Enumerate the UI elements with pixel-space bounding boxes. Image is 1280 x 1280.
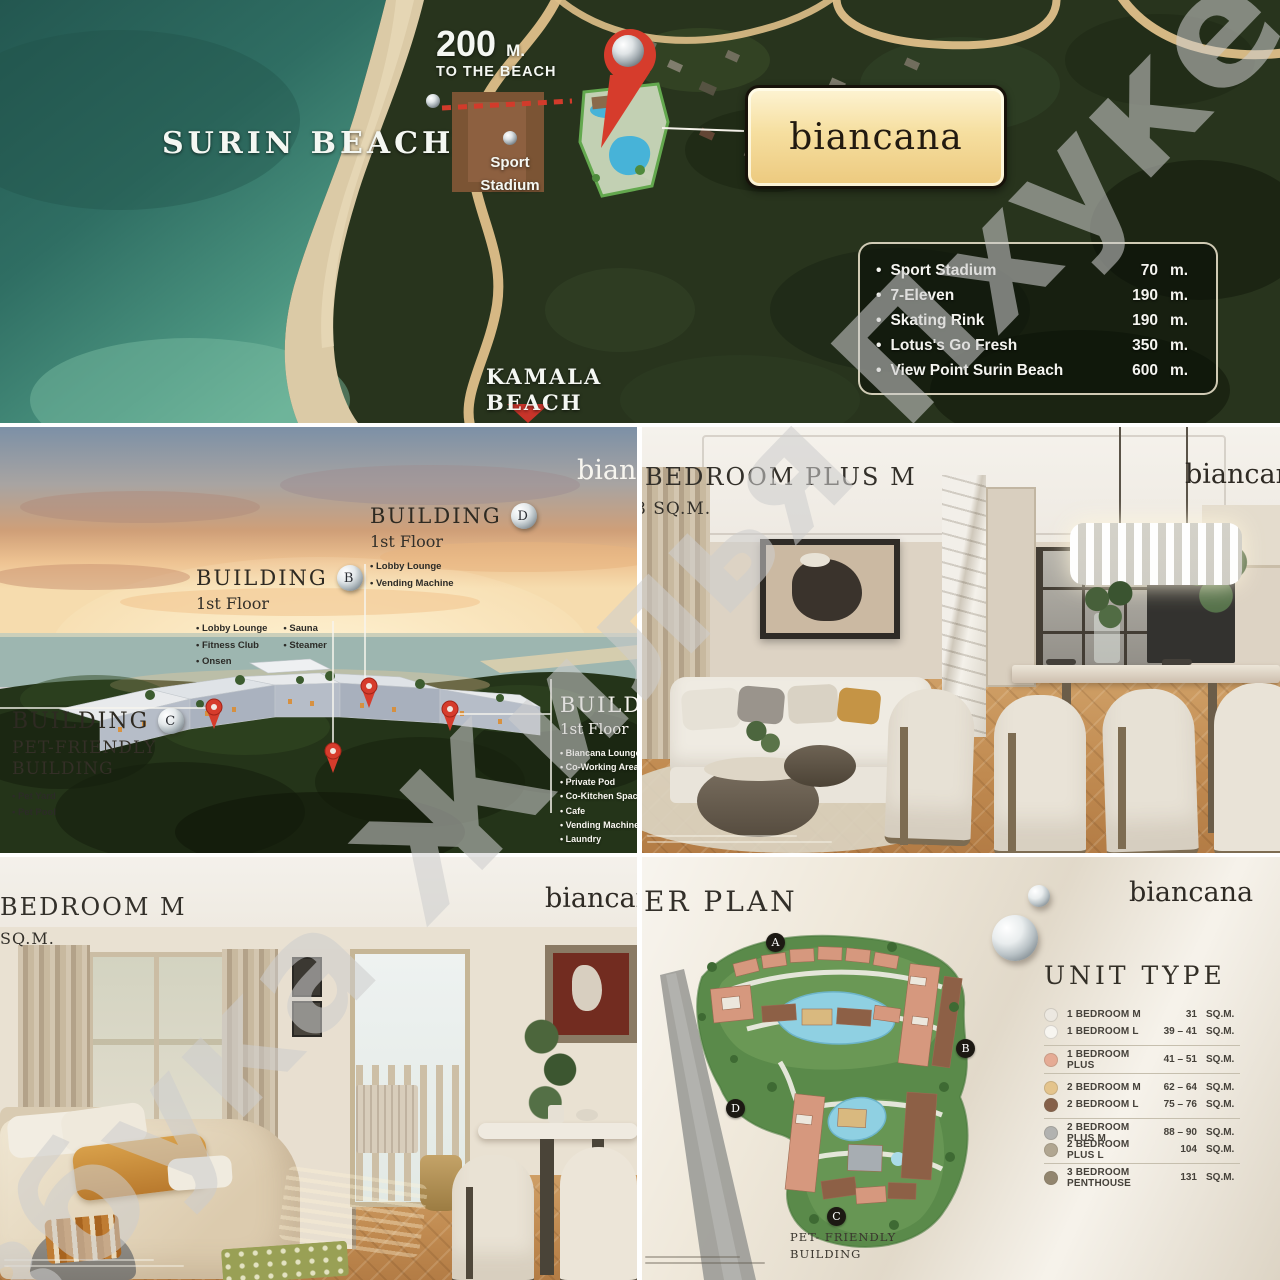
biancana-logo: biancana xyxy=(1185,459,1280,490)
unit-unit: SQ.M. xyxy=(1206,1009,1240,1020)
chair-leg xyxy=(1118,727,1126,849)
unit-area: SQ.M. xyxy=(0,929,55,948)
building-d-title: BUILDING xyxy=(370,504,502,528)
distance-unit: m. xyxy=(1170,287,1200,305)
map-panel: SURIN BEACH 200 M. TO THE BEACH Sport St… xyxy=(0,0,1280,423)
building-b-label: BUILDING B 1st Floor Lobby Lounge Fitnes… xyxy=(196,565,363,671)
swatch xyxy=(1044,1008,1058,1022)
legend-divider xyxy=(1044,1045,1240,1046)
unit-unit: SQ.M. xyxy=(1206,1127,1240,1138)
distance-row: •Skating Rink190m. xyxy=(876,308,1200,333)
amenity-item: Sauna xyxy=(283,621,326,638)
building-a-floor: 1st Floor xyxy=(560,720,637,738)
unit-label: 2 BEDROOM L xyxy=(1067,1099,1153,1110)
disclaimer-line xyxy=(647,835,797,837)
unit-area: 8 SQ.M. xyxy=(642,499,711,519)
pet-friendly-line2: BUILDING xyxy=(790,1246,896,1263)
unit-type-row: 2 BEDROOM M62 – 64SQ.M. xyxy=(1044,1079,1240,1096)
plan-badge-c: C xyxy=(827,1207,846,1226)
building-a-label: BUILDING 1st Floor Biancana Lounge Co-Wo… xyxy=(560,693,637,847)
disclaimer-line xyxy=(4,1259,154,1261)
building-c-badge: C xyxy=(158,708,184,734)
pet-friendly-line1: PET- FRIENDLY xyxy=(790,1229,896,1246)
living-room-panel: BEDROOM PLUS M 8 SQ.M. biancana xyxy=(642,427,1280,853)
biancana-logo: biancana xyxy=(1129,877,1253,908)
distance-unit: m. xyxy=(1170,362,1200,380)
distance-row: •Lotus's Go Fresh350m. xyxy=(876,333,1200,358)
wall-frame xyxy=(292,957,322,997)
unit-unit: SQ.M. xyxy=(1206,1026,1240,1037)
unit-unit: SQ.M. xyxy=(1206,1144,1240,1155)
amenity-item: Laundry xyxy=(560,832,637,846)
building-c-label: BUILDING C PET-FRIENDLY BUILDING Pet Yar… xyxy=(12,708,184,822)
distance-value: 350 xyxy=(1112,337,1158,355)
amenity-item: Lobby Lounge xyxy=(370,559,537,576)
chandelier-chain xyxy=(1119,427,1121,527)
sport-stadium-label: Sport Stadium xyxy=(462,152,558,197)
distance-value: 190 xyxy=(1112,312,1158,330)
amenity-item: Vending Machine xyxy=(370,576,537,593)
tableware xyxy=(576,1109,598,1121)
unit-type-row: 1 BEDROOM PLUS41 – 51SQ.M. xyxy=(1044,1051,1240,1068)
plan-badge-b: B xyxy=(956,1039,975,1058)
building-d-badge: D xyxy=(511,503,537,529)
dining-table xyxy=(1012,665,1280,683)
chair-leg xyxy=(466,1187,473,1279)
distance-row: •Sport Stadium70m. xyxy=(876,258,1200,283)
building-d-floor: 1st Floor xyxy=(370,532,537,551)
chair-leg xyxy=(900,727,908,845)
coffee-table-small xyxy=(784,745,856,787)
unit-type-row: 1 BEDROOM L39 – 41SQ.M. xyxy=(1044,1023,1240,1040)
amenity-item: Co-Working Area xyxy=(560,760,637,774)
amenity-item: Onsen xyxy=(196,654,267,671)
sport-stadium-line2: Stadium xyxy=(462,175,558,198)
door-frame xyxy=(986,487,1036,687)
amenity-item: Pet Yard xyxy=(12,789,184,806)
building-b-items-right: Sauna Steamer xyxy=(283,621,326,671)
distance-value: 70 xyxy=(1112,262,1158,280)
unit-type-legend: UNIT TYPE 1 BEDROOM M31SQ.M. 1 BEDROOM L… xyxy=(1044,961,1240,1186)
place-setting xyxy=(1046,659,1076,665)
dining-chair xyxy=(1214,683,1280,853)
unit-range: 62 – 64 xyxy=(1153,1082,1197,1093)
table-top xyxy=(478,1123,637,1139)
chair-leg xyxy=(1008,733,1016,851)
amenity-item: Pet Pool xyxy=(12,805,184,822)
beach-distance-caption: TO THE BEACH xyxy=(436,64,557,80)
sofa-pillow-gold xyxy=(836,687,881,725)
balcony-cabinet xyxy=(356,1085,418,1153)
kamala-beach-label: KAMALA BEACH xyxy=(486,364,602,417)
unit-unit: SQ.M. xyxy=(1206,1082,1240,1093)
swatch xyxy=(1044,1025,1058,1039)
amenity-item: Vending Machine xyxy=(560,818,637,832)
distance-unit: m. xyxy=(1170,262,1200,280)
unit-type-row: 2 BEDROOM PLUS L104SQ.M. xyxy=(1044,1141,1240,1158)
unit-type-row: 2 BEDROOM L75 – 76SQ.M. xyxy=(1044,1096,1240,1113)
distance-unit: m. xyxy=(1170,337,1200,355)
biancana-logo: biancana xyxy=(545,883,637,914)
biancana-logo: biancana xyxy=(577,455,637,486)
unit-label: 1 BEDROOM PLUS xyxy=(1067,1049,1153,1071)
unit-range: 104 xyxy=(1153,1144,1197,1155)
pearl-large xyxy=(992,915,1038,961)
swatch xyxy=(1044,1126,1058,1140)
buildings-panel: biancana BUILDING D 1st Floor Lobby Loun… xyxy=(0,427,637,853)
amenity-item: Lobby Lounge xyxy=(196,621,267,638)
bedroom-panel: BEDROOM M SQ.M. biancana xyxy=(0,857,637,1280)
distance-name: View Point Surin Beach xyxy=(890,362,1112,380)
sofa-pillow xyxy=(787,684,839,725)
unit-label: 3 BEDROOM PENTHOUSE xyxy=(1067,1167,1153,1189)
building-c-title: BUILDING xyxy=(12,709,149,734)
table-pedestal xyxy=(540,1139,554,1275)
masterplan-panel: A B D C PET- FRIENDLY BUILDING ER PLAN b… xyxy=(642,857,1280,1280)
amenity-item: Co-Kitchen Space xyxy=(560,789,637,803)
pet-friendly-caption: PET- FRIENDLY BUILDING xyxy=(790,1229,896,1264)
building-c-items: Pet Yard Pet Pool xyxy=(12,789,184,822)
unit-range: 131 xyxy=(1153,1172,1197,1183)
wall-frame xyxy=(292,1001,322,1037)
unit-unit: SQ.M. xyxy=(1206,1172,1240,1183)
building-a-title: BUILDING xyxy=(560,693,637,717)
unit-unit: SQ.M. xyxy=(1206,1054,1240,1065)
kamala-line1: KAMALA xyxy=(486,364,602,390)
unit-range: 75 – 76 xyxy=(1153,1099,1197,1110)
tableware xyxy=(548,1105,564,1123)
sofa-pillow xyxy=(681,687,742,731)
unit-range: 41 – 51 xyxy=(1153,1054,1197,1065)
distance-value: 600 xyxy=(1112,362,1158,380)
unit-range: 88 – 90 xyxy=(1153,1127,1197,1138)
swatch xyxy=(1044,1081,1058,1095)
building-c-subtitle2: BUILDING xyxy=(12,759,184,780)
unit-type-row: 1 BEDROOM M31SQ.M. xyxy=(1044,1006,1240,1023)
disclaimer-line xyxy=(4,1265,184,1267)
distances-box: •Sport Stadium70m. •7-Eleven190m. •Skati… xyxy=(858,242,1218,395)
plan-badge-a: A xyxy=(766,933,785,952)
swatch xyxy=(1044,1143,1058,1157)
swatch xyxy=(1044,1053,1058,1067)
building-b-badge: B xyxy=(337,565,363,591)
unit-title: BEDROOM PLUS M xyxy=(645,463,917,491)
building-d-items: Lobby Lounge Vending Machine xyxy=(370,559,537,592)
unit-type-row: 3 BEDROOM PENTHOUSE131SQ.M. xyxy=(1044,1169,1240,1186)
plaid-throw xyxy=(44,1214,122,1264)
amenity-item: Biancana Lounge xyxy=(560,746,637,760)
surin-beach-label: SURIN BEACH xyxy=(162,126,454,161)
amenity-item: Cafe xyxy=(560,804,637,818)
pearl-small xyxy=(1028,885,1050,907)
distance-name: Sport Stadium xyxy=(890,262,1112,280)
kamala-line2: BEACH xyxy=(486,390,602,416)
beach-distance-value: 200 xyxy=(436,23,496,64)
distance-value: 190 xyxy=(1112,287,1158,305)
table-flowers xyxy=(1074,573,1140,631)
biancana-sign-label: biancana xyxy=(789,117,962,158)
beach-distance-unit: M. xyxy=(506,41,525,60)
unit-unit: SQ.M. xyxy=(1206,1099,1240,1110)
plan-badge-d: D xyxy=(726,1099,745,1118)
building-d-label: BUILDING D 1st Floor Lobby Lounge Vendin… xyxy=(370,503,537,592)
swatch xyxy=(1044,1171,1058,1185)
sport-stadium-line1: Sport xyxy=(462,152,558,175)
building-a-items: Biancana Lounge Co-Working Area Private … xyxy=(560,746,637,847)
unit-range: 39 – 41 xyxy=(1153,1026,1197,1037)
distance-name: 7-Eleven xyxy=(890,287,1112,305)
dining-chair xyxy=(560,1147,637,1280)
coffee-table-flowers xyxy=(734,707,790,767)
amenity-item: Steamer xyxy=(283,638,326,655)
distance-name: Skating Rink xyxy=(890,312,1112,330)
masterplan-title: ER PLAN xyxy=(644,885,798,918)
hat-figure xyxy=(800,553,830,567)
bed-pillow-small xyxy=(167,1155,233,1191)
legend-divider xyxy=(1044,1073,1240,1074)
disclaimer-line xyxy=(647,841,832,843)
unit-range: 31 xyxy=(1153,1009,1197,1020)
distance-row: •7-Eleven190m. xyxy=(876,283,1200,308)
beach-distance-callout: 200 M. TO THE BEACH xyxy=(436,26,557,80)
distance-row: •View Point Surin Beach600m. xyxy=(876,358,1200,383)
brochure-collage: SURIN BEACH 200 M. TO THE BEACH Sport St… xyxy=(0,0,1280,1280)
amenity-item: Private Pod xyxy=(560,775,637,789)
distance-unit: m. xyxy=(1170,312,1200,330)
biancana-map-sign: biancana xyxy=(745,85,1007,189)
legend-divider xyxy=(1044,1163,1240,1164)
unit-title: BEDROOM M xyxy=(0,893,187,921)
building-c-subtitle1: PET-FRIENDLY xyxy=(12,738,184,759)
disclaimer-line xyxy=(645,1262,765,1264)
disclaimer-line xyxy=(645,1256,740,1258)
building-b-items-left: Lobby Lounge Fitness Club Onsen xyxy=(196,621,267,671)
legend-title: UNIT TYPE xyxy=(1044,961,1240,990)
unit-label: 1 BEDROOM M xyxy=(1067,1009,1153,1020)
unit-label: 2 BEDROOM M xyxy=(1067,1082,1153,1093)
unit-label: 2 BEDROOM PLUS L xyxy=(1067,1139,1153,1161)
building-b-title: BUILDING xyxy=(196,566,328,590)
place-setting xyxy=(1162,659,1192,665)
dining-chair xyxy=(1101,687,1199,853)
distance-name: Lotus's Go Fresh xyxy=(890,337,1112,355)
unit-label: 1 BEDROOM L xyxy=(1067,1026,1153,1037)
legend-divider xyxy=(1044,1118,1240,1119)
dining-chair xyxy=(884,688,975,847)
amenity-item: Fitness Club xyxy=(196,638,267,655)
dining-chair xyxy=(452,1155,534,1280)
swatch xyxy=(1044,1098,1058,1112)
building-b-floor: 1st Floor xyxy=(196,594,363,613)
